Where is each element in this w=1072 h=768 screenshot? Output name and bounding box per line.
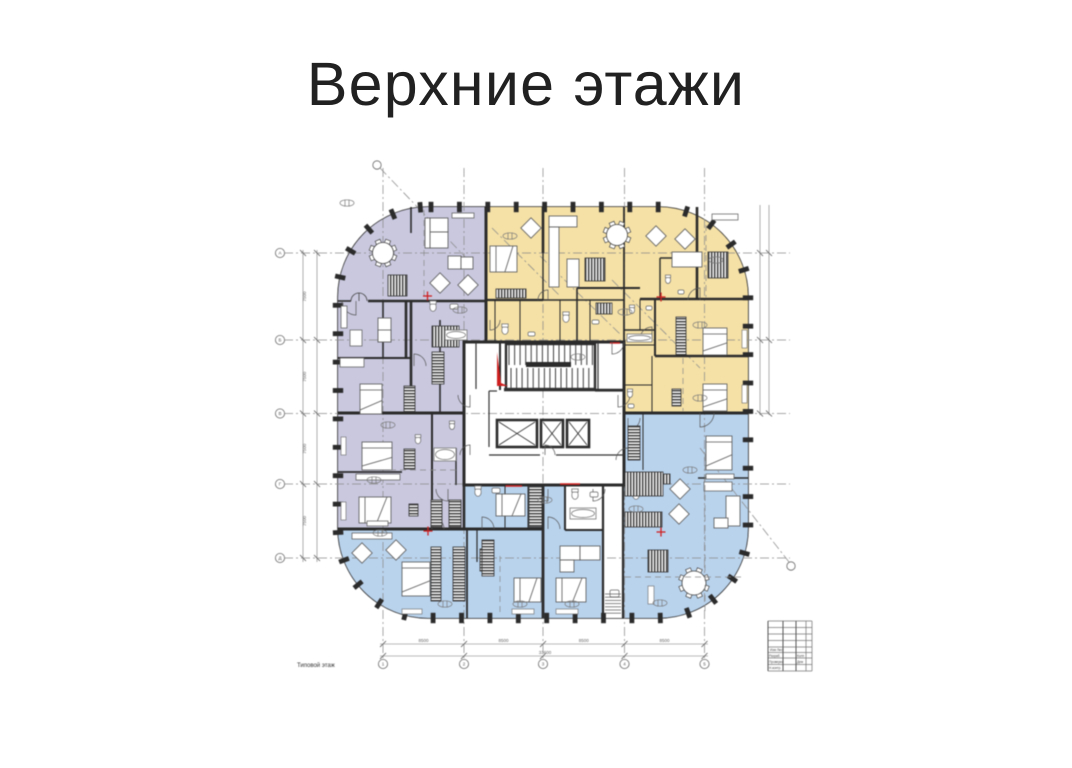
- svg-text:Колп: Колп: [797, 654, 804, 658]
- svg-text:7500: 7500: [302, 291, 307, 302]
- svg-text:Разраб.: Разраб.: [769, 654, 781, 658]
- svg-text:Н.контр.: Н.контр.: [769, 666, 781, 670]
- svg-text:Дем: Дем: [797, 660, 803, 664]
- svg-text:Типовой этаж: Типовой этаж: [297, 662, 335, 669]
- svg-text:33600: 33600: [539, 650, 552, 655]
- svg-text:8500: 8500: [579, 638, 590, 643]
- svg-text:Изм Лист: Изм Лист: [770, 648, 784, 652]
- svg-text:Б: Б: [279, 338, 282, 343]
- svg-text:7500: 7500: [302, 515, 307, 526]
- svg-text:7500: 7500: [302, 443, 307, 454]
- svg-text:А: А: [278, 251, 281, 256]
- svg-text:Проверил: Проверил: [769, 660, 784, 664]
- svg-text:В: В: [278, 411, 281, 416]
- svg-text:8500: 8500: [660, 638, 671, 643]
- svg-text:8500: 8500: [419, 638, 430, 643]
- svg-text:7500: 7500: [302, 371, 307, 382]
- svg-text:8500: 8500: [499, 638, 510, 643]
- svg-text:Д: Д: [278, 556, 281, 561]
